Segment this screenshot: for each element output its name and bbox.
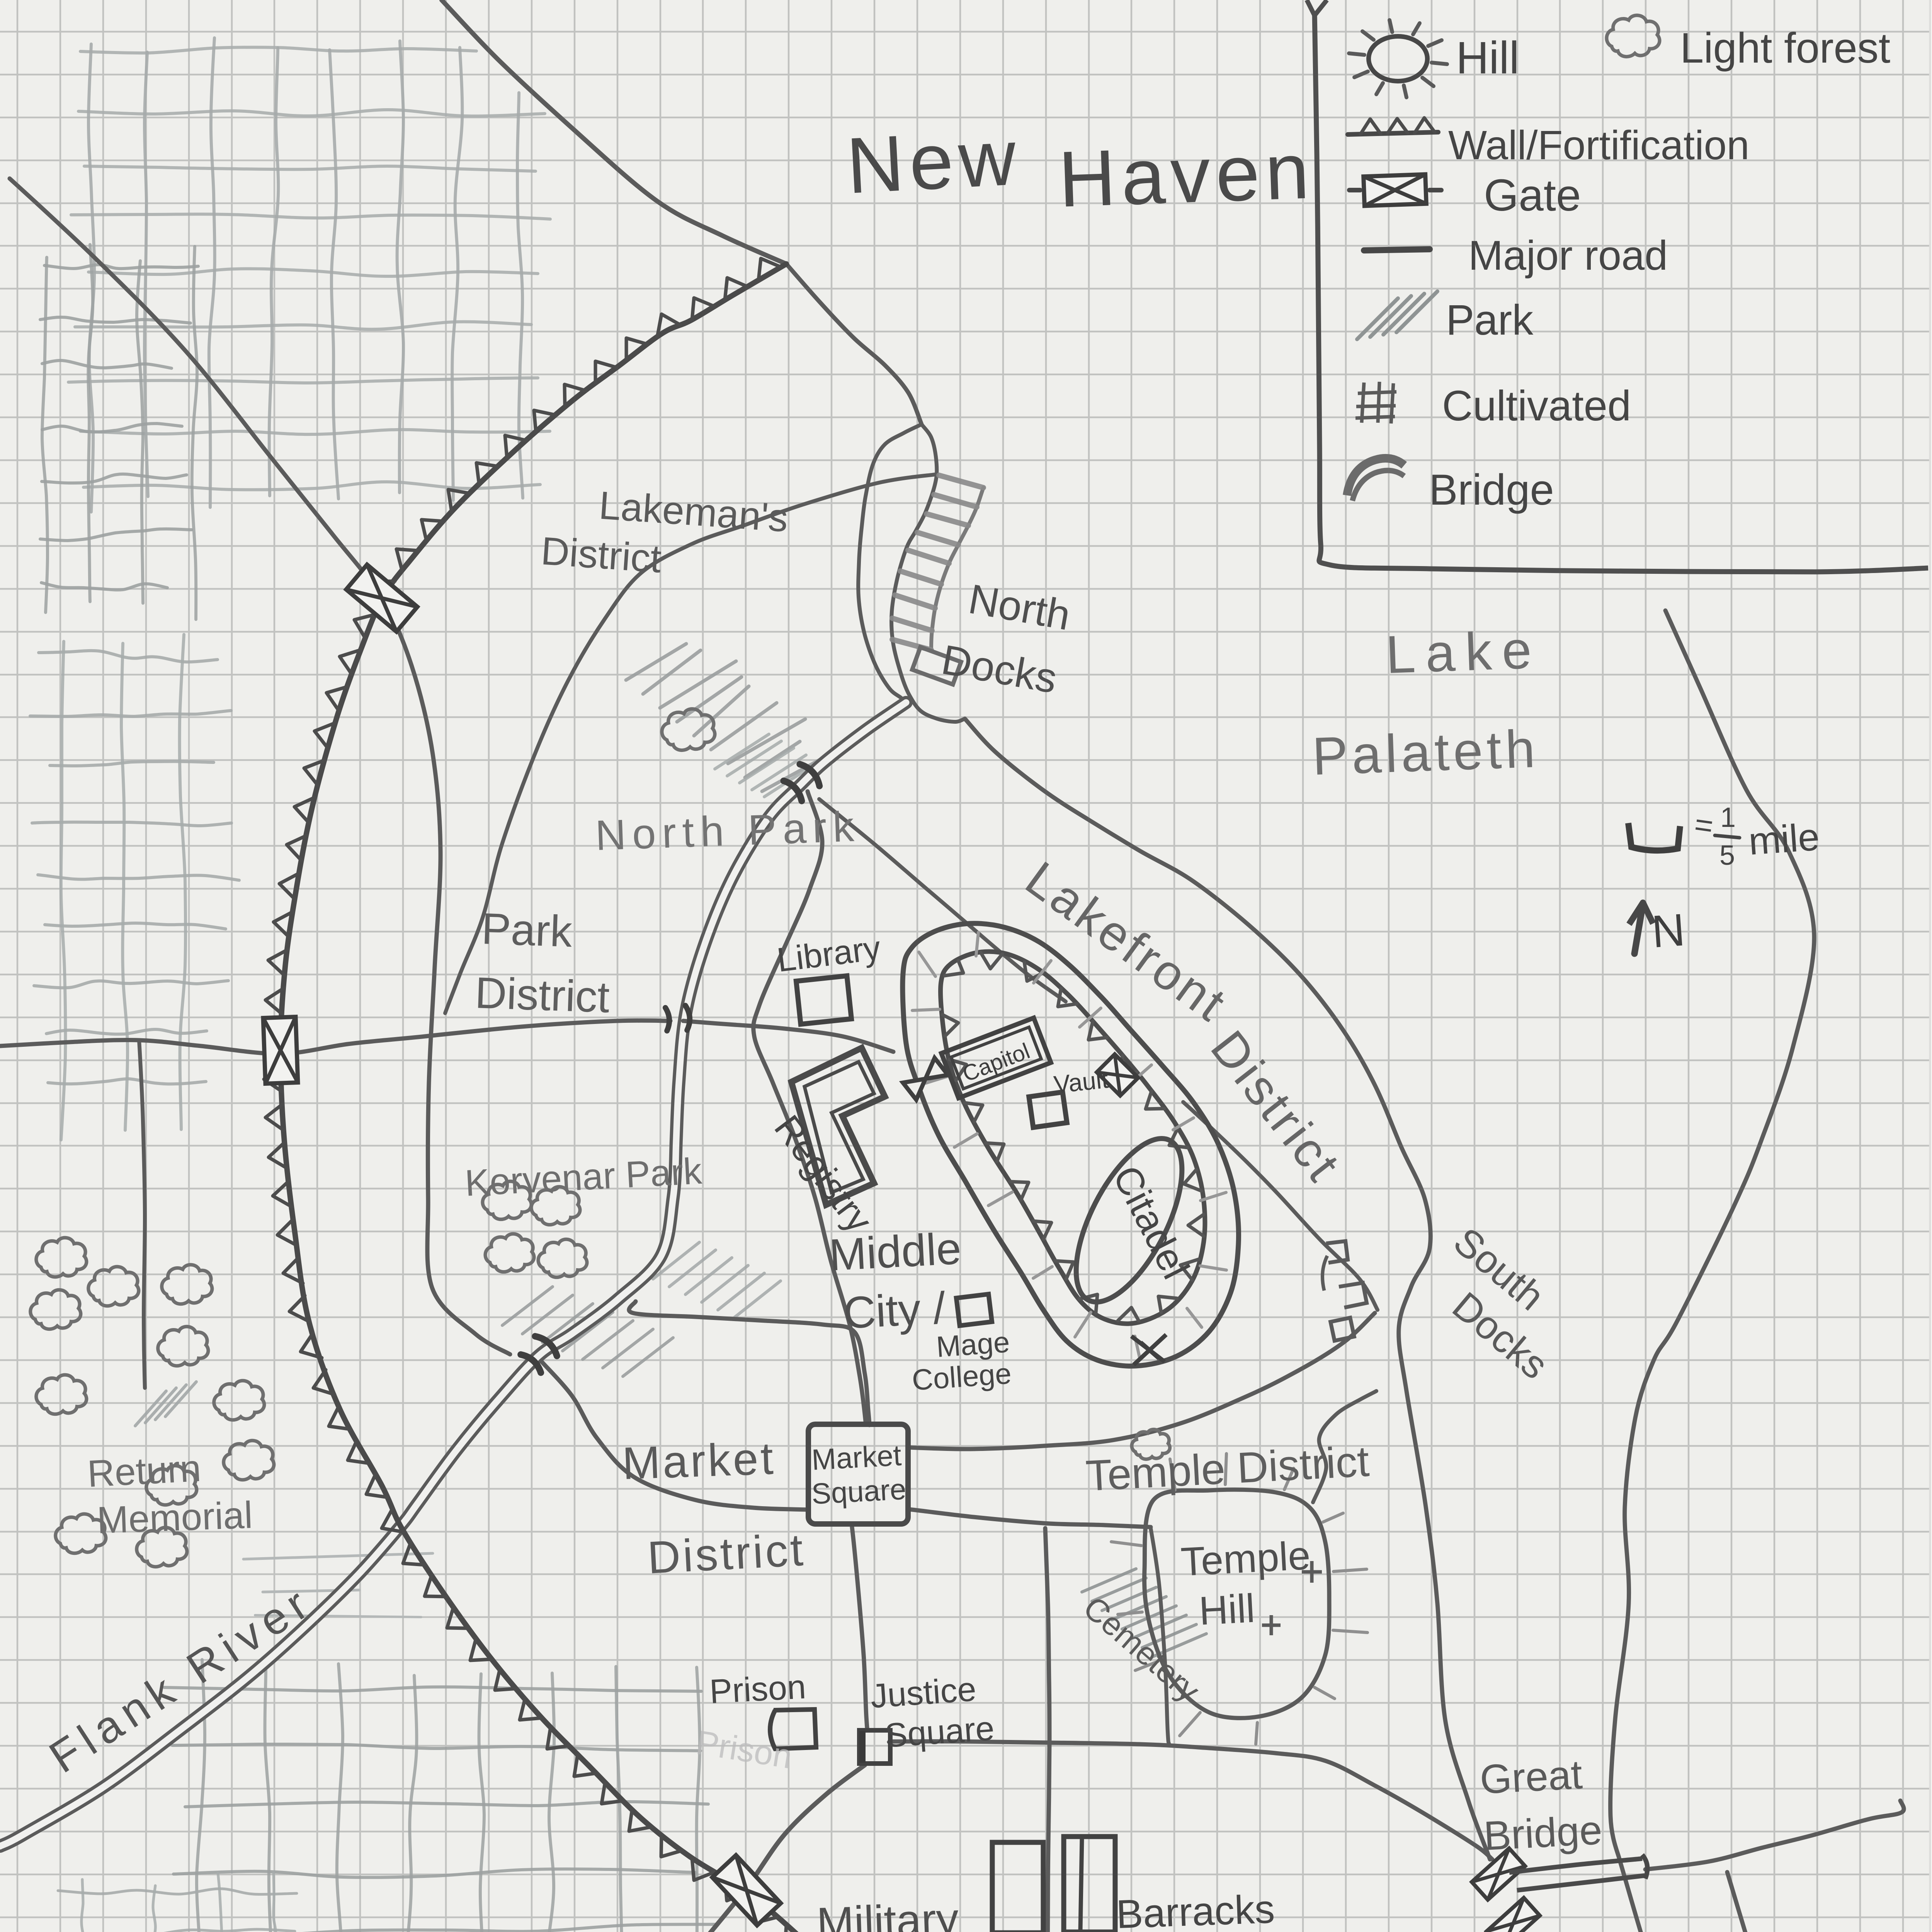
svg-text:North Park: North Park	[595, 803, 861, 859]
svg-text:Park: Park	[1446, 296, 1534, 344]
svg-text:Justice: Justice	[869, 1670, 977, 1715]
svg-text:City /: City /	[842, 1282, 947, 1338]
svg-text:Temple: Temple	[1180, 1533, 1311, 1585]
svg-text:College: College	[911, 1357, 1012, 1397]
svg-text:Cultivated: Cultivated	[1442, 382, 1631, 430]
svg-text:Square: Square	[883, 1709, 995, 1755]
svg-text:Bridge: Bridge	[1429, 466, 1554, 514]
svg-text:Return: Return	[86, 1447, 202, 1495]
svg-text:Major road: Major road	[1468, 232, 1668, 279]
svg-text:Square: Square	[811, 1473, 907, 1511]
svg-text:Haven: Haven	[1057, 126, 1316, 224]
svg-text:Lake: Lake	[1385, 620, 1543, 685]
svg-text:Light forest: Light forest	[1680, 24, 1890, 72]
svg-text:Hill: Hill	[1198, 1586, 1256, 1634]
svg-text:Hill: Hill	[1456, 32, 1519, 83]
svg-text:Palateth: Palateth	[1311, 719, 1540, 786]
svg-text:Prison: Prison	[709, 1667, 807, 1711]
svg-text:Market: Market	[811, 1439, 902, 1476]
svg-text:Barracks: Barracks	[1116, 1887, 1276, 1932]
svg-text:Memorial: Memorial	[96, 1493, 253, 1541]
svg-text:1: 1	[1720, 802, 1736, 833]
svg-text:Gate: Gate	[1484, 170, 1581, 220]
svg-text:Park: Park	[481, 904, 573, 956]
svg-text:District: District	[646, 1524, 806, 1583]
svg-text:Middle: Middle	[828, 1223, 963, 1280]
svg-text:mile: mile	[1747, 815, 1821, 863]
svg-text:Vault: Vault	[1053, 1065, 1110, 1099]
svg-text:Market: Market	[621, 1433, 776, 1489]
svg-text:Wall/Fortification: Wall/Fortification	[1448, 122, 1749, 168]
svg-text:District: District	[539, 529, 663, 581]
svg-text:New: New	[844, 113, 1023, 210]
svg-text:Great: Great	[1479, 1752, 1583, 1803]
svg-text:Bridge: Bridge	[1483, 1807, 1603, 1859]
svg-text:Military: Military	[816, 1893, 959, 1932]
svg-text:District: District	[474, 968, 611, 1022]
svg-text:5: 5	[1719, 840, 1735, 871]
svg-text:N: N	[1650, 904, 1687, 957]
